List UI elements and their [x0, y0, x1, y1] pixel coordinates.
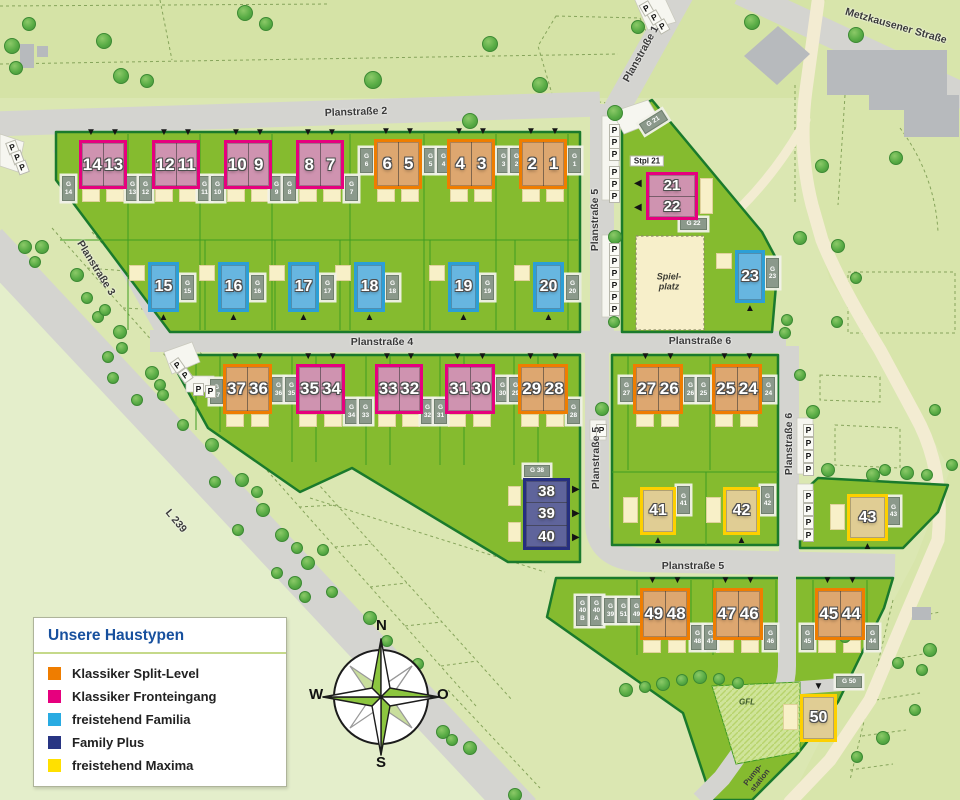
garage-label: 44	[869, 638, 876, 645]
tree-icon	[131, 394, 143, 406]
house-number-8[interactable]: 8	[299, 143, 321, 186]
tree-icon	[781, 314, 793, 326]
terrace	[521, 414, 539, 427]
garage-label: G	[594, 600, 599, 607]
tree-icon	[275, 528, 289, 542]
entrance-arrow-icon: ▼	[823, 576, 833, 586]
compass-east-label: O	[437, 686, 449, 703]
house-number-7[interactable]: 7	[321, 143, 342, 186]
garage-label: 17	[324, 288, 331, 295]
terrace	[155, 189, 173, 202]
tree-icon	[831, 239, 845, 253]
garage-label: G	[770, 266, 775, 273]
garage-label: G	[364, 153, 369, 160]
house-number-18[interactable]: 18	[357, 265, 382, 309]
garage-label: G	[425, 404, 430, 411]
house-number-9[interactable]: 9	[249, 143, 270, 186]
compass-rose: N O S W	[301, 617, 461, 777]
garage-label: G	[255, 280, 260, 287]
house-12-11[interactable]: 1211	[152, 140, 200, 189]
house-10-9[interactable]: 109	[224, 140, 272, 189]
entrance-arrow-icon: ▼	[255, 128, 265, 138]
tree-icon	[18, 240, 32, 254]
garage-label: G	[634, 603, 639, 610]
garage-label: 14	[65, 189, 72, 196]
garage-G38: G 38	[524, 465, 550, 477]
tree-icon	[909, 704, 921, 716]
house-number-49[interactable]: 49	[643, 591, 666, 637]
tree-icon	[9, 61, 23, 75]
garage-label: A	[594, 615, 599, 622]
legend-item-maxima: freistehend Maxima	[48, 758, 272, 773]
house-number-31[interactable]: 31	[448, 367, 471, 411]
garage-label: G	[765, 493, 770, 500]
compass-north-label: N	[376, 617, 387, 634]
terrace	[401, 189, 419, 202]
terrace	[429, 265, 445, 281]
tree-icon	[482, 36, 498, 52]
garage-label: 24	[765, 390, 772, 397]
house-number-20[interactable]: 20	[536, 265, 561, 309]
house-49-48[interactable]: 4948	[640, 588, 690, 640]
house-number-32[interactable]: 32	[400, 367, 421, 411]
house-number-38[interactable]: 38	[526, 481, 567, 503]
parking-marker: P	[803, 490, 814, 503]
parking-marker: P	[609, 148, 620, 161]
house-number-34[interactable]: 34	[321, 367, 342, 411]
terrace	[473, 414, 491, 427]
house-number-13[interactable]: 13	[104, 143, 125, 186]
terrace	[299, 189, 317, 202]
garage-label: G	[438, 404, 443, 411]
garage-label: 12	[142, 189, 149, 196]
garage-G-10: G10	[211, 176, 224, 201]
garage-G-7: G7	[345, 176, 358, 201]
tree-icon	[70, 268, 84, 282]
house-18[interactable]: 18	[354, 262, 385, 312]
parking-marker: P	[803, 424, 814, 437]
house-number-17[interactable]: 17	[291, 265, 316, 309]
garage-label: G	[485, 280, 490, 287]
entrance-arrow-icon: ▶	[572, 509, 580, 519]
parking-marker: P	[803, 529, 814, 542]
house-number-1[interactable]: 1	[544, 142, 565, 186]
tree-icon	[866, 468, 880, 482]
entrance-arrow-icon: ▲	[653, 536, 663, 546]
terrace	[740, 414, 758, 427]
terrace	[448, 414, 466, 427]
garage-G-51: G51	[617, 598, 630, 623]
tree-icon	[259, 17, 273, 31]
tree-icon	[848, 27, 864, 43]
area-label: Stpl 21	[630, 156, 664, 167]
garage-label: G 50	[842, 678, 856, 685]
garage-G-17: G17	[321, 275, 334, 300]
house-number-47[interactable]: 47	[716, 591, 739, 637]
tree-icon	[145, 366, 159, 380]
tree-icon	[631, 20, 645, 34]
entrance-arrow-icon: ▲	[229, 313, 239, 323]
garage-label: G	[624, 382, 629, 389]
house-19[interactable]: 19	[448, 262, 479, 312]
tree-icon	[140, 74, 154, 88]
entrance-arrow-icon: ▼	[641, 352, 651, 362]
entrance-arrow-icon: ▲	[863, 542, 873, 552]
house-number-39[interactable]: 39	[526, 503, 567, 525]
garage-label: 5	[429, 161, 433, 168]
terrace	[522, 189, 540, 202]
garage-label: G	[349, 181, 354, 188]
garage-label: G	[608, 603, 613, 610]
tree-icon	[793, 231, 807, 245]
house-number-33[interactable]: 33	[378, 367, 400, 411]
house-35-34[interactable]: 3534	[296, 364, 345, 414]
house-37-36[interactable]: 3736	[223, 364, 272, 414]
garage-label: 40	[579, 607, 586, 614]
garage-label: 46	[767, 638, 774, 645]
terrace	[508, 486, 521, 506]
garage-label: G	[325, 280, 330, 287]
area-label: GFL	[739, 698, 755, 707]
terrace	[226, 414, 244, 427]
tree-icon	[900, 466, 914, 480]
tree-icon	[876, 731, 890, 745]
parking-marker: P	[803, 463, 814, 476]
house-41[interactable]: 41	[640, 487, 676, 535]
terrace	[269, 265, 285, 281]
house-number-44[interactable]: 44	[841, 591, 863, 637]
garage-label: 27	[623, 390, 630, 397]
garage-label: 1	[573, 161, 577, 168]
legend-swatch-icon	[48, 713, 61, 726]
house-number-25[interactable]: 25	[715, 367, 738, 411]
tree-icon	[96, 33, 112, 49]
entrance-arrow-icon: ▼	[478, 127, 488, 137]
legend-swatch-icon	[48, 759, 61, 772]
tree-icon	[288, 576, 302, 590]
terrace	[450, 189, 468, 202]
house-number-11[interactable]: 11	[177, 143, 198, 186]
house-number-21[interactable]: 21	[649, 175, 695, 197]
house-45-44[interactable]: 4544	[815, 588, 865, 640]
entrance-arrow-icon: ▼	[303, 128, 313, 138]
garage-label: 11	[201, 189, 208, 196]
garage-G-18: G18	[386, 275, 399, 300]
house-43[interactable]: 43	[847, 494, 888, 541]
terrace	[706, 497, 721, 523]
house-number-2[interactable]: 2	[522, 142, 544, 186]
house-number-40[interactable]: 40	[526, 526, 567, 547]
garage-label: G	[571, 404, 576, 411]
tree-icon	[794, 369, 806, 381]
house-number-36[interactable]: 36	[248, 367, 269, 411]
house-number-26[interactable]: 26	[659, 367, 681, 411]
legend-box: Unsere Haustypen Klassiker Split-LevelKl…	[33, 617, 287, 787]
house-number-22[interactable]: 22	[649, 197, 695, 218]
legend-item-label: Klassiker Split-Level	[72, 666, 199, 681]
tree-icon	[235, 473, 249, 487]
house-14-13[interactable]: 1413	[79, 140, 127, 189]
house-number-30[interactable]: 30	[471, 367, 493, 411]
garage-label: 40	[593, 607, 600, 614]
entrance-arrow-icon: ▼	[405, 127, 415, 137]
parking-marker: P	[803, 450, 814, 463]
terrace	[129, 265, 145, 281]
tree-icon	[113, 325, 127, 339]
house-number-6[interactable]: 6	[377, 142, 399, 186]
garage-label: G	[287, 181, 292, 188]
tree-icon	[22, 17, 36, 31]
entrance-arrow-icon: ▼	[673, 576, 683, 586]
terrace	[251, 189, 269, 202]
garage-label: 33	[362, 412, 369, 419]
house-47-46[interactable]: 4746	[713, 588, 763, 640]
house-number-19[interactable]: 19	[451, 265, 476, 309]
terrace	[402, 414, 420, 427]
legend-item-familia: freistehend Familia	[48, 712, 272, 727]
garage-G-28: G28	[567, 399, 580, 424]
house-number-42[interactable]: 42	[726, 490, 757, 532]
garage-label: 7	[350, 189, 354, 196]
tree-icon	[463, 741, 477, 755]
tree-icon	[656, 677, 670, 691]
entrance-arrow-icon: ▼	[328, 352, 338, 362]
tree-icon	[326, 586, 338, 598]
house-21-22[interactable]: 2122	[646, 172, 698, 220]
tree-icon	[779, 327, 791, 339]
tree-icon	[713, 673, 725, 685]
terrace	[636, 414, 654, 427]
garage-G-14: G14	[62, 176, 75, 201]
house-number-16[interactable]: 16	[221, 265, 246, 309]
garage-label: G	[202, 181, 207, 188]
garage-label: 28	[570, 412, 577, 419]
garage-G-23: G23	[766, 258, 779, 288]
terrace	[661, 414, 679, 427]
garage-G-40-A: G40A	[590, 596, 603, 626]
garage-label: G	[276, 382, 281, 389]
tree-icon	[291, 542, 303, 554]
legend-title: Unsere Haustypen	[34, 618, 286, 654]
tree-icon	[299, 591, 311, 603]
garage-label: G	[130, 181, 135, 188]
site-plan-map: G14G13G12G11G10G9G8G7G6G5G4G3G2G1G15G16G…	[0, 0, 960, 800]
terrace	[106, 189, 124, 202]
house-27-26[interactable]: 2726	[633, 364, 683, 414]
tree-icon	[892, 657, 904, 669]
house-15[interactable]: 15	[148, 262, 179, 312]
house-33-32[interactable]: 3332	[375, 364, 423, 414]
entrance-arrow-icon: ▼	[648, 576, 658, 586]
terrace	[716, 253, 732, 269]
garage-G-16: G16	[251, 275, 264, 300]
house-31-30[interactable]: 3130	[445, 364, 495, 414]
garage-label: 41	[680, 500, 687, 507]
street-label: Planstraße 5	[662, 560, 724, 572]
tree-icon	[676, 674, 688, 686]
house-number-37[interactable]: 37	[226, 367, 248, 411]
house-number-23[interactable]: 23	[738, 253, 762, 300]
entrance-arrow-icon: ▼	[478, 352, 488, 362]
garage-label: G	[580, 600, 585, 607]
garage-label: 19	[484, 288, 491, 295]
house-number-24[interactable]: 24	[738, 367, 760, 411]
garage-label: G	[185, 280, 190, 287]
garage-label: G	[572, 153, 577, 160]
tree-icon	[35, 240, 49, 254]
house-38-39-40[interactable]: 383940	[523, 478, 570, 550]
terrace	[508, 522, 521, 542]
house-number-15[interactable]: 15	[151, 265, 176, 309]
garage-label: 26	[687, 390, 694, 397]
tree-icon	[157, 389, 169, 401]
tree-icon	[831, 316, 843, 328]
garage-label: 9	[275, 189, 279, 196]
house-number-4[interactable]: 4	[450, 142, 472, 186]
legend-swatch-icon	[48, 690, 61, 703]
garage-label: G	[349, 404, 354, 411]
parking-marker: P	[193, 383, 204, 396]
house-2-1[interactable]: 21	[519, 139, 567, 189]
garage-G-25: G25	[697, 377, 710, 402]
entrance-arrow-icon: ▼	[327, 128, 337, 138]
tree-icon	[916, 664, 928, 676]
garage-G-1: G1	[568, 148, 581, 173]
garage-G-26: G26	[684, 377, 697, 402]
entrance-arrow-icon: ▲	[745, 304, 755, 314]
entrance-arrow-icon: ▼	[381, 127, 391, 137]
entrance-arrow-icon: ▶	[572, 533, 580, 543]
terrace	[323, 189, 341, 202]
garage-label: 23	[769, 273, 776, 280]
legend-item-plus: Family Plus	[48, 735, 272, 750]
garage-G-42: G42	[761, 486, 774, 514]
house-number-41[interactable]: 41	[643, 490, 673, 532]
house-number-45[interactable]: 45	[818, 591, 841, 637]
garage-G-3: G3	[497, 148, 510, 173]
tree-icon	[29, 256, 41, 268]
tree-icon	[107, 372, 119, 384]
garage-G-40-B: G40B	[576, 596, 589, 626]
garage-G-8: G8	[283, 176, 296, 201]
house-number-46[interactable]: 46	[739, 591, 761, 637]
house-4-3[interactable]: 43	[447, 139, 495, 189]
terrace	[251, 414, 269, 427]
house-42[interactable]: 42	[723, 487, 760, 535]
legend-swatch-icon	[48, 736, 61, 749]
garage-G-20: G20	[566, 275, 579, 300]
garage-label: G	[805, 630, 810, 637]
tree-icon	[205, 438, 219, 452]
terrace	[643, 640, 661, 653]
entrance-arrow-icon: ▼	[110, 128, 120, 138]
tree-icon	[462, 113, 478, 129]
house-number-12[interactable]: 12	[155, 143, 177, 186]
legend-item-label: Klassiker Fronteingang	[72, 689, 216, 704]
house-number-27[interactable]: 27	[636, 367, 659, 411]
tree-icon	[177, 419, 189, 431]
house-29-28[interactable]: 2928	[518, 364, 568, 414]
garage-label: 10	[214, 189, 221, 196]
house-number-43[interactable]: 43	[850, 497, 885, 538]
tree-icon	[237, 5, 253, 21]
house-number-50[interactable]: 50	[803, 697, 834, 739]
house-number-10[interactable]: 10	[227, 143, 249, 186]
house-number-28[interactable]: 28	[544, 367, 566, 411]
tree-icon	[619, 683, 633, 697]
house-number-3[interactable]: 3	[472, 142, 493, 186]
house-20[interactable]: 20	[533, 262, 564, 312]
garage-G-19: G19	[481, 275, 494, 300]
tree-icon	[508, 788, 522, 800]
terrace	[377, 189, 395, 202]
house-50[interactable]: 50	[800, 694, 837, 742]
house-number-48[interactable]: 48	[666, 591, 688, 637]
garage-label: G 22	[686, 220, 700, 227]
tree-icon	[923, 643, 937, 657]
house-17[interactable]: 17	[288, 262, 319, 312]
legend-item-split: Klassiker Split-Level	[48, 666, 272, 681]
house-8-7[interactable]: 87	[296, 140, 344, 189]
terrace	[715, 414, 733, 427]
street-label: Planstraße 5	[590, 427, 602, 489]
garage-G-34: G34	[345, 399, 358, 424]
tree-icon	[607, 105, 623, 121]
garage-G-24: G24	[762, 377, 775, 402]
garage-label: G	[390, 280, 395, 287]
tree-icon	[744, 14, 760, 30]
garage-label: 20	[569, 288, 576, 295]
garage-label: G	[688, 382, 693, 389]
terrace	[179, 189, 197, 202]
entrance-arrow-icon: ◀	[634, 203, 642, 213]
compass-south-label: S	[376, 754, 386, 771]
tree-icon	[921, 469, 933, 481]
entrance-arrow-icon: ▼	[406, 352, 416, 362]
entrance-arrow-icon: ▼	[382, 352, 392, 362]
garage-G-30: G30	[496, 377, 509, 402]
street-label: Planstraße 6	[783, 413, 795, 475]
garage-label: G	[621, 603, 626, 610]
garage-label: G	[66, 181, 71, 188]
house-25-24[interactable]: 2524	[712, 364, 762, 414]
garage-label: 36	[275, 390, 282, 397]
house-6-5[interactable]: 65	[374, 139, 422, 189]
tree-icon	[116, 342, 128, 354]
garage-G-27: G27	[620, 377, 633, 402]
garage-G-6: G6	[360, 148, 373, 173]
garage-G-15: G15	[181, 275, 194, 300]
garage-label: G	[501, 153, 506, 160]
house-number-5[interactable]: 5	[399, 142, 420, 186]
entrance-arrow-icon: ▼	[159, 128, 169, 138]
garage-label: G	[215, 181, 220, 188]
terrace	[199, 265, 215, 281]
garage-label: B	[580, 615, 585, 622]
house-23[interactable]: 23	[735, 250, 765, 303]
entrance-arrow-icon: ▼	[183, 128, 193, 138]
tree-icon	[251, 486, 263, 498]
house-number-35[interactable]: 35	[299, 367, 321, 411]
terrace	[783, 704, 798, 730]
tree-icon	[639, 681, 651, 693]
garage-label: G 38	[530, 467, 544, 474]
house-16[interactable]: 16	[218, 262, 249, 312]
house-number-14[interactable]: 14	[82, 143, 104, 186]
garage-label: 34	[348, 412, 355, 419]
house-number-29[interactable]: 29	[521, 367, 544, 411]
tree-icon	[256, 503, 270, 517]
